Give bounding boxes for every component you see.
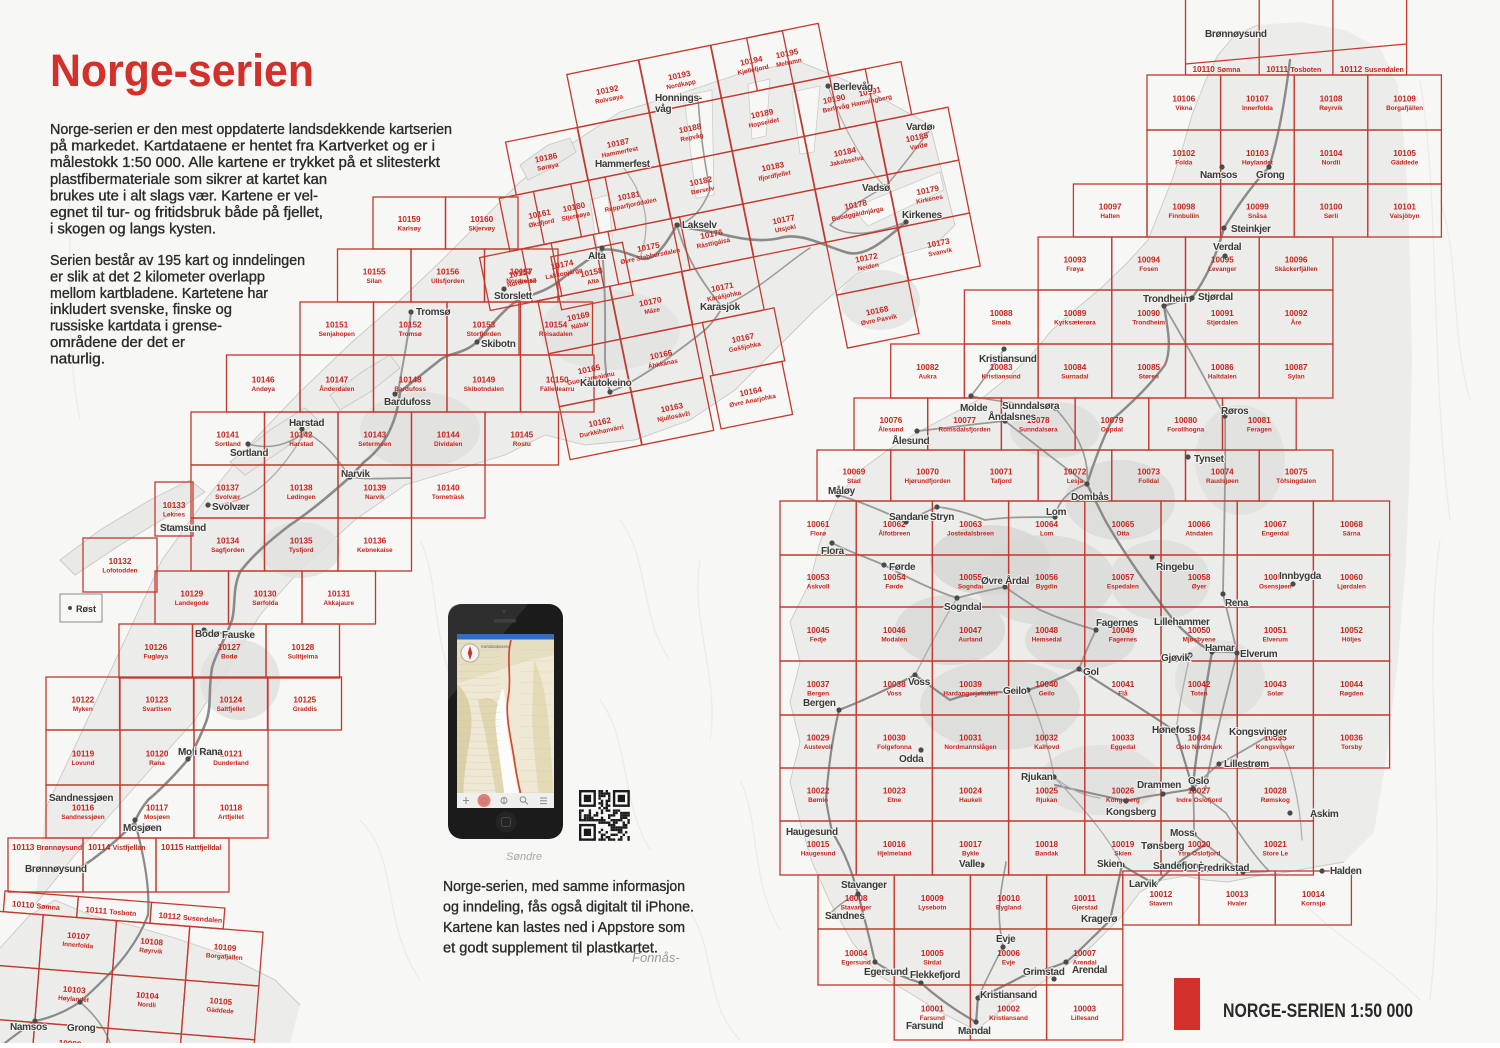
svg-text:10017: 10017 (959, 840, 982, 849)
svg-text:Sandnessjøen: Sandnessjøen (61, 814, 104, 821)
svg-text:Berlevåg: Berlevåg (833, 81, 873, 93)
svg-text:10121: 10121 (220, 750, 243, 759)
svg-text:Norge-serien, med samme inform: Norge-serien, med samme informasjon (443, 878, 685, 895)
svg-text:10103: 10103 (63, 985, 87, 996)
svg-text:10145: 10145 (510, 431, 533, 440)
svg-text:Bardufoss: Bardufoss (384, 397, 431, 408)
svg-text:Haugesund: Haugesund (801, 851, 836, 858)
svg-text:Alta: Alta (588, 251, 606, 262)
svg-text:10020: 10020 (1188, 840, 1211, 849)
svg-text:Mosjøen: Mosjøen (144, 814, 170, 821)
svg-text:Askvoll: Askvoll (807, 584, 830, 591)
svg-text:på markedet. Kartdataene er he: på markedet. Kartdataene er hentet fra K… (50, 139, 435, 155)
svg-text:Narvik: Narvik (365, 494, 385, 501)
svg-text:10099: 10099 (58, 1038, 82, 1043)
svg-text:Bodø: Bodø (195, 629, 221, 640)
svg-text:Sandefjord: Sandefjord (1153, 861, 1202, 872)
svg-text:Valle: Valle (959, 859, 981, 870)
svg-text:10022: 10022 (807, 787, 830, 796)
svg-text:Stjørdalen: Stjørdalen (1207, 320, 1238, 327)
svg-text:10114 Vistfjellan: 10114 Vistfjellan (88, 843, 146, 852)
svg-text:Sogndal: Sogndal (944, 602, 982, 613)
svg-text:10105: 10105 (1393, 149, 1416, 158)
svg-text:10104: 10104 (136, 990, 160, 1001)
svg-text:10077: 10077 (953, 416, 976, 425)
svg-text:10018: 10018 (1035, 840, 1058, 849)
svg-text:Kyrksæterøra: Kyrksæterøra (1054, 320, 1096, 327)
svg-text:Valsjöbyn: Valsjöbyn (1390, 213, 1420, 220)
svg-text:10115 Hattfjelldal: 10115 Hattfjelldal (161, 843, 221, 852)
svg-text:Eggedal: Eggedal (1110, 744, 1135, 751)
svg-text:10074: 10074 (1211, 468, 1234, 477)
svg-text:10110 Sømna: 10110 Sømna (1193, 65, 1241, 74)
svg-text:Tromsø: Tromsø (399, 331, 422, 338)
svg-text:10002: 10002 (997, 1005, 1020, 1014)
svg-text:10128: 10128 (291, 643, 314, 652)
svg-text:Sandnes: Sandnes (825, 911, 865, 922)
svg-text:Fedje: Fedje (810, 637, 827, 644)
svg-text:10149: 10149 (472, 376, 495, 385)
svg-text:10148: 10148 (399, 376, 422, 385)
svg-text:Nordli: Nordli (137, 1001, 156, 1009)
svg-text:Skibotndalen: Skibotndalen (464, 386, 504, 393)
svg-text:Lakselv: Lakselv (682, 220, 717, 231)
svg-text:10113 Brønnøysund: 10113 Brønnøysund (12, 843, 82, 852)
svg-text:Mo i Rana: Mo i Rana (178, 747, 223, 758)
svg-text:Storslett: Storslett (494, 291, 533, 302)
svg-text:Sirdal: Sirdal (923, 960, 941, 967)
svg-text:10023: 10023 (883, 787, 906, 796)
svg-text:Silan: Silan (367, 278, 382, 285)
svg-text:10063: 10063 (959, 520, 982, 529)
svg-text:Egersund: Egersund (841, 960, 871, 967)
svg-text:Solør: Solør (1267, 691, 1284, 698)
svg-text:10147: 10147 (325, 376, 348, 385)
svg-text:10155: 10155 (363, 268, 386, 277)
svg-text:10129: 10129 (180, 590, 203, 599)
svg-text:10056: 10056 (1035, 573, 1058, 582)
svg-text:Kristiansand: Kristiansand (989, 1015, 1028, 1022)
svg-text:russiske kartdata i grense-: russiske kartdata i grense- (50, 319, 222, 335)
svg-text:Tysfjord: Tysfjord (289, 547, 314, 554)
svg-text:Grong: Grong (1256, 170, 1285, 181)
svg-text:Lesja: Lesja (1067, 478, 1084, 485)
svg-text:10088: 10088 (990, 309, 1013, 318)
svg-text:inkludert svenske, finske og: inkludert svenske, finske og (50, 302, 232, 318)
svg-text:Otta: Otta (1117, 531, 1130, 538)
svg-text:10092: 10092 (1285, 309, 1308, 318)
svg-text:Lødingen: Lødingen (287, 494, 316, 501)
svg-text:Stryn: Stryn (930, 512, 954, 523)
svg-text:Trondheim: Trondheim (1132, 320, 1165, 327)
svg-text:10144: 10144 (437, 431, 460, 440)
svg-text:10073: 10073 (1137, 468, 1160, 477)
svg-text:10081: 10081 (1248, 416, 1271, 425)
svg-text:Vadsø: Vadsø (862, 183, 891, 194)
svg-text:Dunderland: Dunderland (213, 760, 249, 767)
svg-text:10140: 10140 (437, 484, 460, 493)
svg-text:Fagernes: Fagernes (1109, 637, 1138, 644)
svg-text:10007: 10007 (1073, 949, 1096, 958)
svg-text:Modalen: Modalen (881, 637, 907, 644)
svg-text:Øyer: Øyer (1192, 584, 1207, 591)
svg-text:10064: 10064 (1035, 520, 1058, 529)
svg-text:Kartene kan lastes ned i Appst: Kartene kan lastes ned i Appstore som (443, 919, 685, 936)
svg-text:Bygdin: Bygdin (1036, 584, 1058, 591)
svg-text:10137: 10137 (216, 484, 239, 493)
svg-text:Kragerø: Kragerø (1081, 914, 1118, 925)
svg-text:Arendal: Arendal (1072, 965, 1108, 976)
svg-text:10055: 10055 (959, 573, 982, 582)
svg-text:Ålesund: Ålesund (878, 425, 903, 434)
svg-text:10150: 10150 (546, 376, 569, 385)
svg-text:10103: 10103 (1246, 149, 1269, 158)
svg-text:Lillehammer: Lillehammer (1154, 617, 1210, 628)
svg-text:Røros: Røros (1221, 406, 1249, 417)
svg-text:10127: 10127 (218, 643, 241, 652)
svg-text:10138: 10138 (290, 484, 313, 493)
svg-text:Lovund: Lovund (71, 760, 94, 767)
svg-text:Gäddede: Gäddede (1391, 160, 1419, 167)
svg-text:Halten: Halten (1100, 213, 1120, 220)
svg-text:Myken: Myken (73, 706, 93, 713)
svg-text:10120: 10120 (146, 750, 169, 759)
svg-text:Oslo: Oslo (1188, 776, 1209, 787)
svg-text:Innbygda: Innbygda (1279, 571, 1322, 582)
svg-text:i skogen og langs kysten.: i skogen og langs kysten. (50, 222, 216, 238)
svg-text:Romsdalsfjorden: Romsdalsfjorden (938, 427, 990, 434)
svg-text:Norge-serien er den mest oppda: Norge-serien er den mest oppdaterte land… (50, 122, 452, 138)
svg-text:10139: 10139 (363, 484, 386, 493)
svg-text:10069: 10069 (843, 468, 866, 477)
svg-text:10030: 10030 (883, 734, 906, 743)
svg-text:Kristiansund: Kristiansund (982, 374, 1021, 381)
svg-text:10100: 10100 (1320, 203, 1343, 212)
svg-text:10016: 10016 (883, 840, 906, 849)
svg-text:10001: 10001 (921, 1005, 944, 1014)
svg-text:Lillesand: Lillesand (1071, 1015, 1099, 1022)
svg-text:10152: 10152 (399, 321, 422, 330)
svg-text:Andøya: Andøya (251, 386, 275, 393)
svg-text:Drammen: Drammen (1137, 780, 1181, 791)
svg-text:10076: 10076 (880, 416, 903, 425)
svg-text:Røyrvik: Røyrvik (1319, 105, 1343, 112)
svg-text:Austevoll: Austevoll (804, 744, 833, 751)
svg-text:10019: 10019 (1112, 840, 1135, 849)
svg-text:10037: 10037 (807, 680, 830, 689)
svg-text:Store Le: Store Le (1263, 851, 1289, 858)
svg-text:Bandak: Bandak (1035, 851, 1059, 858)
svg-text:10082: 10082 (916, 363, 939, 372)
svg-text:Akkajaure: Akkajaure (324, 600, 355, 607)
svg-text:10090: 10090 (1137, 309, 1160, 318)
svg-text:Indre Oslofjord: Indre Oslofjord (1176, 797, 1222, 804)
svg-text:Kautokeino: Kautokeino (580, 378, 632, 389)
svg-text:Mosjøen: Mosjøen (123, 823, 162, 834)
svg-text:Bergen: Bergen (803, 698, 836, 709)
svg-text:Lillestrøm: Lillestrøm (1224, 759, 1269, 770)
svg-text:Molde: Molde (960, 403, 988, 414)
svg-text:Hjørundfjorden: Hjørundfjorden (905, 478, 951, 485)
svg-text:Elverum: Elverum (1240, 649, 1278, 660)
svg-text:Verdal: Verdal (1213, 242, 1242, 253)
svg-text:Kartdatabasene: Kartdatabasene (481, 644, 511, 649)
svg-text:Norge-serien: Norge-serien (50, 45, 314, 96)
svg-text:Bergen: Bergen (807, 691, 829, 698)
svg-text:10087: 10087 (1285, 363, 1308, 372)
svg-text:10130: 10130 (254, 590, 277, 599)
svg-text:10116: 10116 (72, 804, 95, 813)
svg-text:10021: 10021 (1264, 840, 1287, 849)
svg-text:10123: 10123 (145, 696, 168, 705)
svg-text:10159: 10159 (398, 215, 421, 224)
svg-text:10086: 10086 (1211, 363, 1234, 372)
svg-text:Etne: Etne (887, 797, 901, 804)
svg-text:Åndalsnes: Åndalsnes (988, 410, 1037, 423)
svg-text:10143: 10143 (363, 431, 386, 440)
svg-text:Hammerfest: Hammerfest (595, 159, 651, 170)
svg-text:Forollhogna: Forollhogna (1167, 427, 1204, 434)
svg-text:10029: 10029 (807, 734, 830, 743)
svg-text:Jostedalsbreen: Jostedalsbreen (947, 531, 994, 538)
svg-text:10038: 10038 (883, 680, 906, 689)
svg-text:Måløy: Måløy (828, 485, 856, 497)
svg-text:Harstad: Harstad (289, 418, 324, 429)
svg-text:10060: 10060 (1340, 573, 1363, 582)
svg-text:Karlsøy: Karlsøy (397, 226, 421, 233)
svg-text:Skibotn: Skibotn (481, 339, 516, 350)
svg-text:Folda: Folda (1175, 160, 1192, 167)
svg-text:10070: 10070 (916, 468, 939, 477)
svg-text:10135: 10135 (290, 537, 313, 546)
svg-text:Hardangerjøkulen: Hardangerjøkulen (943, 691, 997, 698)
svg-text:Svartisen: Svartisen (142, 706, 171, 713)
svg-text:10015: 10015 (807, 840, 830, 849)
svg-text:10131: 10131 (327, 590, 350, 599)
svg-text:Vardø: Vardø (906, 122, 933, 133)
svg-text:Aurland: Aurland (958, 637, 982, 644)
svg-text:Töfsingdalen: Töfsingdalen (1276, 478, 1316, 485)
svg-text:Elverum: Elverum (1263, 637, 1289, 644)
svg-text:10107: 10107 (67, 931, 91, 942)
svg-text:Namsos: Namsos (10, 1022, 48, 1033)
svg-text:10041: 10041 (1112, 680, 1135, 689)
svg-text:Stamsund: Stamsund (160, 523, 206, 534)
svg-text:Raudsjøen: Raudsjøen (1206, 478, 1239, 485)
svg-text:Namsos: Namsos (1200, 170, 1238, 181)
svg-text:10153: 10153 (472, 321, 495, 330)
svg-text:10039: 10039 (959, 680, 982, 689)
svg-text:Kristiansand: Kristiansand (980, 990, 1037, 1001)
svg-text:Harstad: Harstad (289, 441, 313, 448)
svg-text:Støren: Støren (1139, 374, 1159, 381)
svg-text:Øvre Årdal: Øvre Årdal (981, 574, 1030, 587)
svg-text:10025: 10025 (1035, 787, 1058, 796)
svg-text:Lom: Lom (1046, 507, 1067, 518)
svg-text:Fredrikstad: Fredrikstad (1198, 863, 1249, 874)
svg-text:Skjervøy: Skjervøy (468, 226, 495, 233)
svg-text:Fauske: Fauske (222, 630, 255, 641)
svg-text:Engerdal: Engerdal (1262, 531, 1290, 538)
svg-text:Karasjok: Karasjok (700, 302, 741, 313)
svg-text:Røgden: Røgden (1340, 691, 1364, 698)
svg-text:Skien: Skien (1097, 859, 1122, 870)
svg-text:10126: 10126 (144, 643, 167, 652)
svg-text:10117: 10117 (146, 804, 169, 813)
svg-text:Kalhovd: Kalhovd (1034, 744, 1059, 751)
svg-text:10119: 10119 (72, 750, 95, 759)
svg-text:10093: 10093 (1064, 256, 1087, 265)
svg-text:Sørli: Sørli (1324, 213, 1338, 220)
svg-text:10061: 10061 (807, 520, 830, 529)
svg-text:Tromsø: Tromsø (416, 307, 452, 318)
svg-text:Flekkefjord: Flekkefjord (910, 970, 960, 981)
svg-text:Frøya: Frøya (1066, 266, 1084, 273)
svg-text:Gjøvik: Gjøvik (1161, 653, 1191, 664)
svg-text:Gjerstad: Gjerstad (1072, 905, 1098, 912)
svg-text:10079: 10079 (1101, 416, 1124, 425)
svg-text:Gol: Gol (1083, 667, 1099, 678)
svg-text:Sogndal: Sogndal (958, 584, 983, 591)
svg-text:Flå: Flå (1118, 690, 1128, 698)
svg-text:Ålesund: Ålesund (892, 434, 930, 447)
svg-text:Nordmannslågen: Nordmannslågen (944, 743, 996, 751)
svg-text:10141: 10141 (216, 431, 239, 440)
svg-text:Bardufoss: Bardufoss (394, 386, 426, 393)
svg-text:Lysebotn: Lysebotn (918, 905, 946, 912)
svg-text:Finnbuliin: Finnbuliin (1169, 213, 1200, 220)
svg-text:Snåsa: Snåsa (1248, 212, 1267, 220)
svg-text:Stjørdal: Stjørdal (1198, 292, 1233, 303)
svg-text:Haukeli: Haukeli (959, 797, 982, 804)
svg-text:10005: 10005 (921, 949, 944, 958)
svg-text:Svolvær: Svolvær (212, 502, 250, 513)
svg-text:Vikna: Vikna (1175, 105, 1192, 112)
svg-text:10154: 10154 (544, 321, 567, 330)
svg-text:Evje: Evje (1002, 960, 1016, 967)
svg-text:10151: 10151 (325, 321, 348, 330)
svg-text:10040: 10040 (1035, 680, 1058, 689)
svg-text:Rana: Rana (149, 760, 165, 767)
svg-text:et godt supplement til plastka: et godt supplement til plastkartet. (443, 940, 658, 957)
svg-text:10006: 10006 (997, 949, 1020, 958)
svg-text:10053: 10053 (807, 573, 830, 582)
svg-text:10109: 10109 (213, 942, 237, 953)
svg-text:Tafjord: Tafjord (991, 478, 1012, 485)
svg-text:Saltfjellet: Saltfjellet (217, 706, 246, 713)
svg-text:Rostu: Rostu (513, 441, 531, 448)
svg-text:10042: 10042 (1188, 680, 1211, 689)
svg-text:10011: 10011 (1074, 894, 1097, 903)
svg-text:Ljørdalen: Ljørdalen (1337, 584, 1366, 591)
svg-text:Bømlo: Bømlo (808, 797, 828, 804)
svg-text:områdene der det er: områdene der det er (50, 335, 185, 351)
svg-text:Førde: Førde (885, 584, 903, 591)
svg-text:Evje: Evje (996, 934, 1016, 945)
svg-text:Bykle: Bykle (962, 851, 979, 858)
svg-text:10032: 10032 (1035, 734, 1058, 743)
svg-text:10108: 10108 (1320, 95, 1343, 104)
svg-text:Dividalen: Dividalen (434, 441, 463, 448)
svg-text:Ålfotbreen: Ålfotbreen (878, 529, 910, 538)
svg-text:Surnadal: Surnadal (1061, 374, 1089, 381)
svg-text:Stad: Stad (847, 478, 861, 485)
svg-text:10099: 10099 (1246, 203, 1269, 212)
svg-text:10003: 10003 (1073, 1005, 1096, 1014)
svg-text:10142: 10142 (290, 431, 313, 440)
svg-text:Kongsvinger: Kongsvinger (1256, 744, 1296, 751)
svg-text:Kebnekaise: Kebnekaise (357, 547, 393, 554)
svg-text:er slik at det 2 kilometer ove: er slik at det 2 kilometer overlapp (50, 269, 265, 285)
svg-text:Artfjellet: Artfjellet (218, 814, 245, 821)
svg-text:10066: 10066 (1188, 520, 1211, 529)
svg-text:10097: 10097 (1099, 203, 1122, 212)
svg-text:10118: 10118 (220, 804, 243, 813)
svg-text:Folgefonna: Folgefonna (877, 744, 912, 751)
svg-text:Svolvær: Svolvær (215, 494, 241, 501)
svg-text:Nordli: Nordli (1322, 160, 1341, 167)
svg-text:Voss: Voss (887, 691, 902, 698)
svg-text:NORGE-SERIEN 1:50 000: NORGE-SERIEN 1:50 000 (1223, 1001, 1413, 1022)
svg-text:Torsby: Torsby (1341, 744, 1362, 751)
svg-text:Farsund: Farsund (906, 1021, 944, 1032)
svg-text:Skäckerfjällen: Skäckerfjällen (1275, 266, 1318, 273)
svg-text:10054: 10054 (883, 573, 906, 582)
svg-text:Rjukan: Rjukan (1021, 772, 1053, 783)
svg-text:Hvaler: Hvaler (1227, 901, 1247, 908)
svg-text:Fagernes: Fagernes (1096, 618, 1139, 629)
svg-text:og inndeling, fås også digital: og inndeling, fås også digitalt til iPho… (443, 899, 694, 916)
svg-text:10065: 10065 (1112, 520, 1135, 529)
svg-text:Halden: Halden (1330, 866, 1362, 877)
svg-text:10044: 10044 (1340, 680, 1363, 689)
svg-text:Atndalen: Atndalen (1185, 531, 1212, 538)
svg-text:Søndre: Søndre (506, 851, 542, 863)
svg-text:Haltdalen: Haltdalen (1208, 374, 1237, 381)
svg-text:10102: 10102 (1172, 149, 1195, 158)
svg-text:Stavern: Stavern (1149, 901, 1173, 908)
svg-text:10095: 10095 (1211, 256, 1234, 265)
svg-text:Sortland: Sortland (230, 448, 268, 459)
svg-text:10045: 10045 (807, 626, 830, 635)
svg-text:10156: 10156 (436, 268, 459, 277)
svg-text:10058: 10058 (1188, 573, 1211, 582)
svg-text:Bygland: Bygland (996, 905, 1021, 912)
svg-text:Ringebu: Ringebu (1156, 562, 1194, 573)
svg-text:10026: 10026 (1112, 787, 1135, 796)
svg-text:10136: 10136 (363, 537, 386, 546)
svg-text:10107: 10107 (1246, 95, 1269, 104)
svg-text:Kristiansund: Kristiansund (979, 354, 1037, 365)
svg-text:10051: 10051 (1264, 626, 1287, 635)
svg-text:10031: 10031 (959, 734, 982, 743)
svg-text:Honnings-: Honnings- (655, 93, 702, 104)
svg-text:brukes ute i alt slags vær. Ka: brukes ute i alt slags vær. Kartene er v… (50, 188, 318, 204)
svg-text:Höljes: Höljes (1342, 637, 1362, 644)
svg-text:Fálledearru: Fálledearru (540, 386, 575, 393)
svg-text:Sulitjelma: Sulitjelma (288, 654, 319, 661)
svg-text:10012: 10012 (1150, 890, 1173, 899)
svg-text:Sandnessjøen: Sandnessjøen (49, 793, 113, 804)
svg-text:10085: 10085 (1137, 363, 1160, 372)
svg-text:Fugløya: Fugløya (144, 654, 169, 661)
svg-text:Askim: Askim (1310, 809, 1339, 820)
svg-text:Rømskog: Rømskog (1261, 797, 1290, 804)
svg-text:Førde: Førde (889, 562, 916, 573)
svg-text:10072: 10072 (1064, 468, 1087, 477)
svg-text:mellom kartbladene. Kartetene: mellom kartbladene. Kartetene har (50, 286, 268, 302)
svg-text:Torneträsk: Torneträsk (432, 494, 465, 501)
